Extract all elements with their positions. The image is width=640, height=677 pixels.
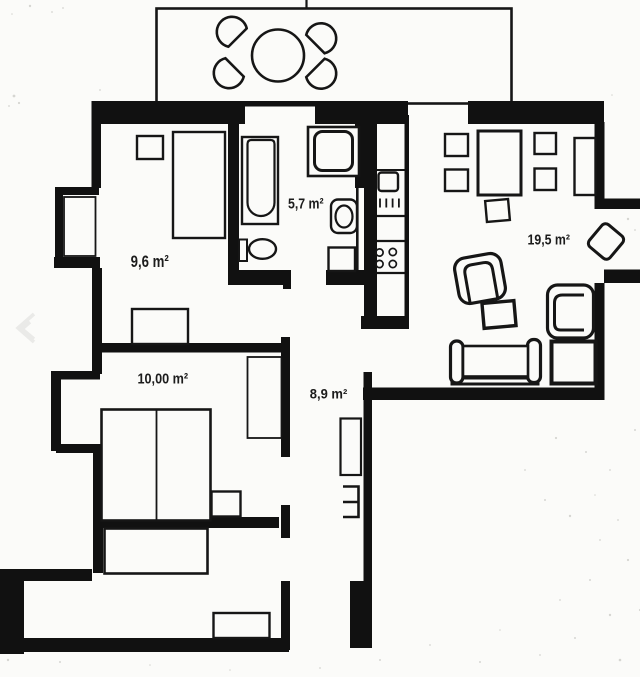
svg-text:8,9 m²: 8,9 m²: [310, 386, 348, 401]
svg-text:10,00 m²: 10,00 m²: [138, 370, 189, 387]
svg-text:9,6 m²: 9,6 m²: [131, 252, 169, 271]
svg-text:5,7 m²: 5,7 m²: [288, 195, 324, 212]
svg-text:19,5 m²: 19,5 m²: [528, 233, 571, 249]
